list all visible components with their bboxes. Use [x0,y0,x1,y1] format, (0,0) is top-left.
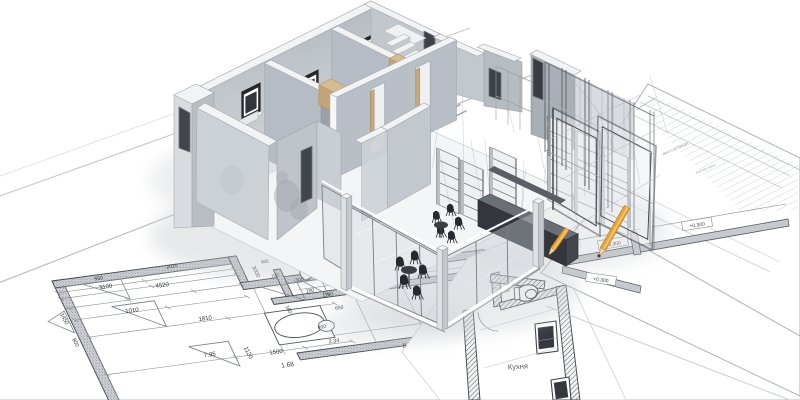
svg-text:Кухня: Кухня [507,361,528,371]
svg-text:550: 550 [94,275,103,282]
svg-text:100: 100 [306,288,315,295]
